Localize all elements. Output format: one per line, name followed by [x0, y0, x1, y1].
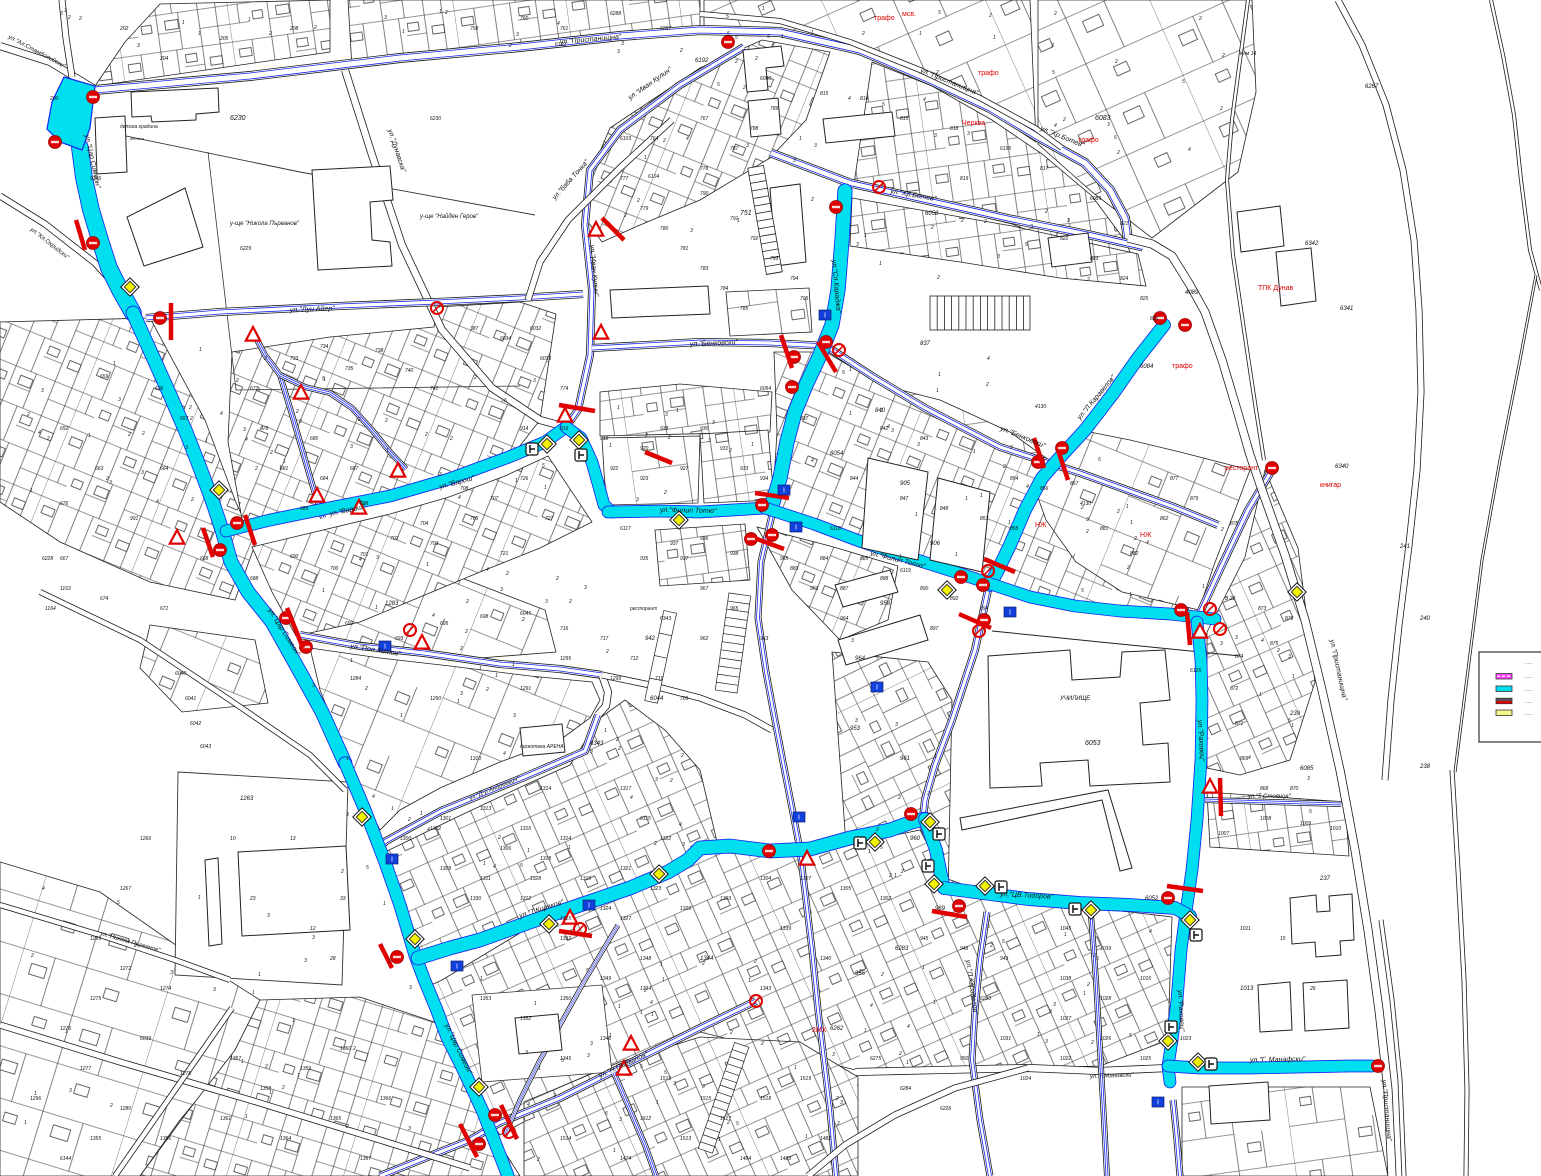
- svg-text:6040: 6040: [175, 671, 186, 677]
- svg-text:933: 933: [740, 466, 749, 472]
- svg-text:6058: 6058: [925, 211, 939, 217]
- svg-text:2: 2: [536, 1157, 540, 1163]
- svg-text:1: 1: [205, 438, 208, 444]
- svg-text:.......: .......: [1524, 711, 1533, 716]
- svg-text:1277: 1277: [80, 1066, 91, 1072]
- svg-text:ул."Луи Айер": ул."Луи Айер": [289, 304, 336, 314]
- svg-text:942: 942: [645, 636, 656, 642]
- svg-text:4: 4: [1026, 484, 1029, 490]
- svg-text:963: 963: [810, 586, 819, 592]
- svg-text:4: 4: [1248, 755, 1251, 761]
- svg-text:5: 5: [880, 845, 883, 851]
- svg-text:2: 2: [983, 219, 987, 225]
- svg-text:868: 868: [1260, 786, 1269, 792]
- svg-text:2: 2: [988, 13, 992, 19]
- svg-text:9206: 9206: [90, 176, 101, 182]
- svg-text:711: 711: [655, 676, 663, 682]
- svg-text:862: 862: [1160, 516, 1169, 522]
- svg-text:815: 815: [900, 116, 909, 122]
- svg-text:1295: 1295: [560, 656, 571, 662]
- svg-text:204: 204: [159, 56, 169, 62]
- svg-text:2: 2: [989, 943, 993, 949]
- svg-text:1: 1: [864, 1028, 867, 1034]
- svg-text:778: 778: [700, 166, 709, 172]
- svg-text:5: 5: [117, 900, 120, 906]
- svg-text:1353: 1353: [480, 996, 491, 1002]
- svg-text:1: 1: [534, 1001, 537, 1007]
- svg-text:4: 4: [1054, 123, 1057, 129]
- svg-text:1: 1: [1008, 520, 1011, 526]
- svg-text:887: 887: [840, 586, 849, 592]
- svg-text:2: 2: [485, 687, 489, 693]
- svg-text:5: 5: [1052, 70, 1055, 76]
- svg-text:819: 819: [960, 176, 969, 182]
- svg-text:.......: .......: [1524, 674, 1533, 679]
- svg-text:1327: 1327: [620, 916, 631, 922]
- svg-text:5: 5: [1129, 1033, 1132, 1039]
- svg-text:2: 2: [188, 405, 192, 411]
- svg-text:953: 953: [850, 726, 861, 732]
- svg-text:2: 2: [345, 1124, 349, 1130]
- svg-text:888: 888: [880, 576, 889, 582]
- svg-text:785: 785: [740, 306, 749, 312]
- svg-text:735: 735: [345, 366, 354, 372]
- svg-text:4089: 4089: [1185, 290, 1199, 296]
- svg-text:788: 788: [750, 126, 759, 132]
- svg-text:1: 1: [439, 9, 442, 15]
- svg-text:3: 3: [840, 1100, 843, 1106]
- svg-text:.......: .......: [1524, 660, 1533, 665]
- svg-text:935: 935: [640, 556, 649, 562]
- svg-text:I: I: [391, 857, 393, 864]
- svg-text:1314: 1314: [560, 836, 571, 842]
- svg-text:794: 794: [790, 276, 799, 282]
- svg-text:964: 964: [855, 656, 866, 662]
- svg-text:1307: 1307: [800, 876, 811, 882]
- svg-text:777: 777: [620, 176, 629, 182]
- svg-text:2: 2: [936, 275, 940, 281]
- svg-text:3: 3: [533, 378, 536, 384]
- svg-text:4: 4: [1146, 540, 1149, 546]
- svg-text:2: 2: [663, 490, 667, 496]
- svg-text:2: 2: [898, 1051, 902, 1057]
- svg-text:1343: 1343: [760, 986, 771, 992]
- svg-text:1: 1: [457, 699, 460, 705]
- svg-text:3: 3: [895, 722, 898, 728]
- svg-text:6340: 6340: [1335, 464, 1349, 470]
- svg-text:1612: 1612: [640, 1116, 651, 1122]
- svg-text:2: 2: [729, 1030, 733, 1036]
- svg-text:793: 793: [770, 256, 779, 262]
- svg-text:1272: 1272: [120, 966, 131, 972]
- svg-text:962: 962: [700, 636, 709, 642]
- svg-text:1: 1: [1292, 674, 1295, 680]
- svg-text:965: 965: [730, 606, 739, 612]
- svg-text:1280: 1280: [120, 1106, 131, 1112]
- svg-text:1364: 1364: [280, 1136, 291, 1142]
- svg-text:740: 740: [405, 368, 414, 374]
- svg-text:3: 3: [257, 387, 260, 393]
- svg-text:дискотека АРЕНА: дискотека АРЕНА: [520, 744, 564, 750]
- svg-text:1: 1: [34, 1091, 37, 1097]
- svg-text:875: 875: [1270, 641, 1279, 647]
- svg-text:881: 881: [1100, 526, 1109, 532]
- svg-text:3: 3: [460, 691, 463, 697]
- svg-text:1: 1: [346, 756, 349, 762]
- svg-text:2: 2: [521, 617, 525, 623]
- svg-text:2: 2: [449, 436, 453, 442]
- svg-text:5: 5: [767, 34, 770, 40]
- svg-text:5: 5: [664, 1070, 667, 1076]
- svg-text:2: 2: [835, 1096, 839, 1102]
- svg-text:1: 1: [868, 849, 871, 855]
- svg-text:трафо: трафо: [978, 70, 999, 77]
- svg-text:3: 3: [41, 388, 44, 394]
- svg-text:751: 751: [740, 210, 752, 217]
- svg-text:1267: 1267: [120, 886, 131, 892]
- svg-text:1: 1: [538, 1066, 541, 1072]
- svg-text:1: 1: [613, 1148, 616, 1154]
- svg-text:1: 1: [386, 448, 389, 454]
- svg-text:792: 792: [750, 236, 759, 242]
- svg-text:1: 1: [199, 347, 202, 353]
- svg-text:2: 2: [653, 841, 657, 847]
- svg-text:5: 5: [640, 1064, 643, 1070]
- svg-text:2: 2: [407, 817, 411, 823]
- svg-text:1: 1: [568, 845, 571, 851]
- svg-text:2: 2: [897, 795, 901, 801]
- svg-text:853: 853: [980, 516, 989, 522]
- svg-text:3: 3: [590, 749, 593, 755]
- svg-text:1360: 1360: [340, 1046, 351, 1052]
- svg-text:700: 700: [330, 566, 339, 572]
- svg-text:2: 2: [505, 571, 509, 577]
- svg-text:2: 2: [836, 1121, 840, 1127]
- svg-text:2: 2: [424, 432, 428, 438]
- svg-text:3: 3: [967, 131, 970, 137]
- svg-text:854: 854: [1010, 476, 1019, 482]
- svg-text:1519: 1519: [800, 1076, 811, 1082]
- svg-text:10: 10: [230, 836, 236, 842]
- svg-text:688: 688: [250, 576, 259, 582]
- svg-text:1317: 1317: [620, 786, 631, 792]
- svg-text:1516: 1516: [660, 1076, 671, 1082]
- svg-text:УЧИЛИЩЕ: УЧИЛИЩЕ: [1059, 696, 1091, 702]
- svg-text:1323: 1323: [650, 886, 661, 892]
- svg-text:2: 2: [960, 218, 964, 224]
- svg-text:1: 1: [258, 972, 261, 978]
- svg-text:872: 872: [1230, 686, 1239, 692]
- svg-text:2: 2: [1219, 106, 1223, 112]
- svg-text:856: 856: [1040, 486, 1049, 492]
- svg-text:4: 4: [38, 430, 41, 436]
- svg-text:1357: 1357: [230, 1056, 241, 1062]
- svg-text:1321: 1321: [620, 866, 631, 872]
- svg-text:1: 1: [495, 673, 498, 679]
- svg-text:1: 1: [936, 388, 939, 394]
- svg-text:716: 716: [560, 626, 569, 632]
- svg-text:698: 698: [480, 614, 489, 620]
- svg-text:6089: 6089: [1090, 196, 1101, 202]
- svg-text:2: 2: [555, 576, 559, 582]
- svg-text:3: 3: [1220, 641, 1223, 647]
- svg-text:1: 1: [604, 728, 607, 734]
- svg-text:3: 3: [118, 397, 121, 403]
- svg-text:3: 3: [500, 587, 503, 593]
- svg-text:4: 4: [156, 499, 159, 505]
- svg-text:1284: 1284: [350, 676, 361, 682]
- svg-text:1: 1: [879, 261, 882, 267]
- svg-text:2: 2: [352, 1046, 356, 1052]
- svg-text:2: 2: [1133, 536, 1137, 542]
- svg-text:1340: 1340: [820, 956, 831, 962]
- svg-text:934: 934: [760, 476, 769, 482]
- svg-text:26: 26: [1309, 986, 1316, 992]
- svg-text:6060: 6060: [760, 76, 771, 82]
- svg-text:2: 2: [810, 197, 814, 203]
- svg-text:2: 2: [46, 436, 50, 442]
- svg-text:2: 2: [760, 1041, 764, 1047]
- svg-text:5: 5: [1081, 588, 1084, 594]
- svg-text:1: 1: [245, 1114, 248, 1120]
- svg-text:2: 2: [669, 778, 673, 784]
- svg-text:1: 1: [781, 34, 784, 40]
- svg-text:727: 727: [545, 516, 554, 522]
- svg-text:652: 652: [60, 426, 69, 432]
- svg-text:6104: 6104: [648, 174, 659, 180]
- svg-text:2: 2: [754, 56, 758, 62]
- svg-text:958: 958: [880, 601, 891, 607]
- svg-text:5: 5: [1002, 939, 1005, 945]
- svg-text:3: 3: [702, 1084, 705, 1090]
- svg-text:1: 1: [811, 30, 814, 36]
- svg-text:6041: 6041: [185, 696, 196, 702]
- svg-text:874: 874: [1235, 654, 1244, 660]
- svg-text:3: 3: [856, 242, 859, 248]
- svg-text:876: 876: [1285, 616, 1294, 622]
- svg-text:1: 1: [420, 811, 423, 817]
- svg-text:960: 960: [910, 836, 921, 842]
- svg-text:790: 790: [700, 191, 709, 197]
- svg-text:2: 2: [701, 961, 705, 967]
- svg-text:2: 2: [508, 43, 512, 49]
- svg-text:2: 2: [1002, 464, 1006, 470]
- svg-text:2: 2: [1044, 209, 1048, 215]
- svg-text:1: 1: [426, 562, 429, 568]
- svg-text:821: 821: [1120, 221, 1129, 227]
- svg-text:5: 5: [561, 1058, 564, 1064]
- svg-text:6117: 6117: [620, 526, 631, 532]
- svg-text:2: 2: [552, 1093, 556, 1099]
- svg-text:914: 914: [520, 426, 529, 432]
- svg-text:6043: 6043: [200, 744, 211, 750]
- svg-text:6275: 6275: [870, 1056, 881, 1062]
- svg-text:1013: 1013: [1240, 986, 1254, 992]
- svg-text:6228: 6228: [42, 556, 53, 562]
- svg-text:885: 885: [860, 556, 869, 562]
- svg-text:1: 1: [934, 754, 937, 760]
- svg-text:3: 3: [682, 842, 685, 848]
- svg-text:2: 2: [935, 70, 939, 76]
- svg-text:6230: 6230: [430, 116, 441, 122]
- svg-text:938: 938: [730, 551, 739, 557]
- svg-text:6042: 6042: [190, 721, 201, 727]
- svg-text:6115: 6115: [640, 816, 651, 822]
- svg-text:4: 4: [486, 567, 489, 573]
- svg-text:1: 1: [375, 605, 378, 611]
- svg-text:2: 2: [880, 972, 884, 978]
- svg-text:I: I: [1009, 610, 1011, 617]
- svg-text:205: 205: [219, 36, 229, 42]
- svg-text:824: 824: [1120, 276, 1129, 282]
- svg-text:5: 5: [726, 14, 729, 20]
- svg-text:2: 2: [1062, 117, 1066, 123]
- svg-text:4: 4: [811, 458, 814, 464]
- svg-text:676: 676: [60, 501, 69, 507]
- svg-text:1: 1: [479, 666, 482, 672]
- svg-text:2: 2: [1276, 648, 1280, 654]
- svg-text:2: 2: [1220, 527, 1224, 533]
- svg-text:1305: 1305: [840, 886, 851, 892]
- svg-text:I: I: [456, 964, 458, 971]
- svg-text:1: 1: [748, 978, 751, 984]
- svg-text:1332: 1332: [560, 936, 571, 942]
- svg-text:2: 2: [875, 827, 879, 833]
- svg-text:I: I: [876, 685, 878, 692]
- svg-text:5: 5: [1098, 457, 1101, 463]
- svg-text:387: 387: [470, 326, 479, 332]
- svg-text:3: 3: [636, 497, 639, 503]
- svg-text:1: 1: [933, 1000, 936, 1006]
- svg-text:5: 5: [1288, 718, 1291, 724]
- svg-text:4: 4: [1188, 147, 1191, 153]
- svg-text:1: 1: [1129, 592, 1132, 598]
- svg-text:3: 3: [1235, 635, 1238, 641]
- svg-text:3: 3: [927, 791, 930, 797]
- svg-text:4: 4: [923, 97, 926, 103]
- svg-text:890: 890: [920, 586, 929, 592]
- svg-text:5: 5: [736, 1121, 739, 1127]
- svg-text:2: 2: [357, 417, 361, 423]
- svg-text:2: 2: [313, 25, 317, 31]
- svg-text:693: 693: [395, 636, 404, 642]
- svg-text:883: 883: [790, 566, 799, 572]
- svg-text:3: 3: [617, 49, 620, 55]
- svg-text:5: 5: [842, 370, 845, 376]
- svg-text:1: 1: [65, 1029, 68, 1035]
- svg-text:795: 795: [800, 296, 809, 302]
- svg-text:у-ще "Найден Геров": у-ще "Найден Геров": [419, 213, 479, 220]
- svg-text:1: 1: [1064, 932, 1067, 938]
- svg-text:Черква: Черква: [962, 120, 985, 127]
- svg-text:1: 1: [1083, 991, 1086, 997]
- svg-text:2: 2: [605, 649, 609, 655]
- svg-text:детска градина: детска градина: [120, 124, 158, 130]
- svg-text:1022: 1022: [1060, 1056, 1071, 1062]
- svg-text:4: 4: [870, 1003, 873, 1009]
- svg-text:3: 3: [587, 1053, 590, 1059]
- svg-text:2: 2: [340, 869, 344, 875]
- svg-text:2: 2: [858, 969, 862, 975]
- svg-text:3: 3: [1030, 224, 1033, 230]
- svg-text:6044: 6044: [650, 696, 664, 702]
- svg-text:674: 674: [100, 596, 109, 602]
- svg-text:1: 1: [737, 218, 740, 224]
- svg-text:1: 1: [660, 962, 663, 968]
- svg-text:1: 1: [1130, 520, 1133, 526]
- svg-text:3: 3: [350, 444, 353, 450]
- svg-text:1: 1: [400, 713, 403, 719]
- svg-text:23: 23: [249, 896, 256, 902]
- svg-text:3: 3: [312, 935, 315, 941]
- svg-text:ресторант: ресторант: [629, 606, 657, 612]
- svg-text:3: 3: [814, 143, 817, 149]
- svg-text:663: 663: [95, 466, 104, 472]
- svg-text:922: 922: [610, 466, 619, 472]
- svg-text:1361: 1361: [220, 1116, 231, 1122]
- svg-text:707: 707: [490, 496, 499, 502]
- svg-text:1301: 1301: [440, 816, 451, 822]
- svg-text:967: 967: [700, 586, 709, 592]
- svg-text:964: 964: [840, 616, 849, 622]
- svg-text:5: 5: [1114, 135, 1117, 141]
- svg-text:1: 1: [938, 372, 941, 378]
- svg-text:1: 1: [965, 496, 968, 502]
- svg-text:918: 918: [600, 436, 609, 442]
- svg-text:733: 733: [290, 356, 299, 362]
- svg-text:1: 1: [973, 449, 976, 455]
- svg-text:3: 3: [516, 32, 519, 38]
- svg-text:1328: 1328: [530, 876, 541, 882]
- svg-text:6262: 6262: [830, 1026, 844, 1032]
- svg-text:2: 2: [141, 431, 145, 437]
- svg-text:1: 1: [864, 233, 867, 239]
- svg-text:2: 2: [1116, 150, 1120, 156]
- svg-text:1: 1: [483, 861, 486, 867]
- svg-text:1266: 1266: [140, 836, 151, 842]
- svg-text:I: I: [588, 903, 590, 910]
- svg-text:6034: 6034: [500, 336, 511, 342]
- svg-text:726: 726: [520, 476, 529, 482]
- svg-text:1: 1: [512, 662, 515, 668]
- svg-text:1313: 1313: [480, 806, 491, 812]
- svg-text:5: 5: [605, 1111, 608, 1117]
- svg-text:855: 855: [1010, 526, 1019, 532]
- svg-text:2: 2: [667, 435, 671, 441]
- svg-text:930: 930: [700, 426, 709, 432]
- svg-text:2: 2: [190, 497, 194, 503]
- svg-text:1: 1: [1291, 723, 1294, 729]
- svg-text:931: 931: [720, 446, 729, 452]
- svg-text:1: 1: [283, 459, 286, 465]
- svg-text:936: 936: [700, 536, 709, 542]
- svg-text:1263: 1263: [240, 796, 254, 802]
- svg-text:1028: 1028: [1100, 996, 1111, 1002]
- svg-text:1: 1: [799, 136, 802, 142]
- svg-text:3: 3: [69, 1088, 72, 1094]
- svg-text:1: 1: [261, 425, 264, 431]
- svg-text:2: 2: [662, 138, 666, 144]
- svg-text:1: 1: [922, 965, 925, 971]
- svg-text:2: 2: [30, 953, 34, 959]
- svg-text:894: 894: [980, 606, 989, 612]
- svg-text:2: 2: [1221, 53, 1225, 59]
- svg-text:детска: детска: [130, 136, 145, 141]
- svg-text:4: 4: [907, 1024, 910, 1030]
- svg-text:4: 4: [427, 827, 430, 833]
- svg-text:4: 4: [432, 613, 435, 619]
- svg-text:738: 738: [375, 348, 384, 354]
